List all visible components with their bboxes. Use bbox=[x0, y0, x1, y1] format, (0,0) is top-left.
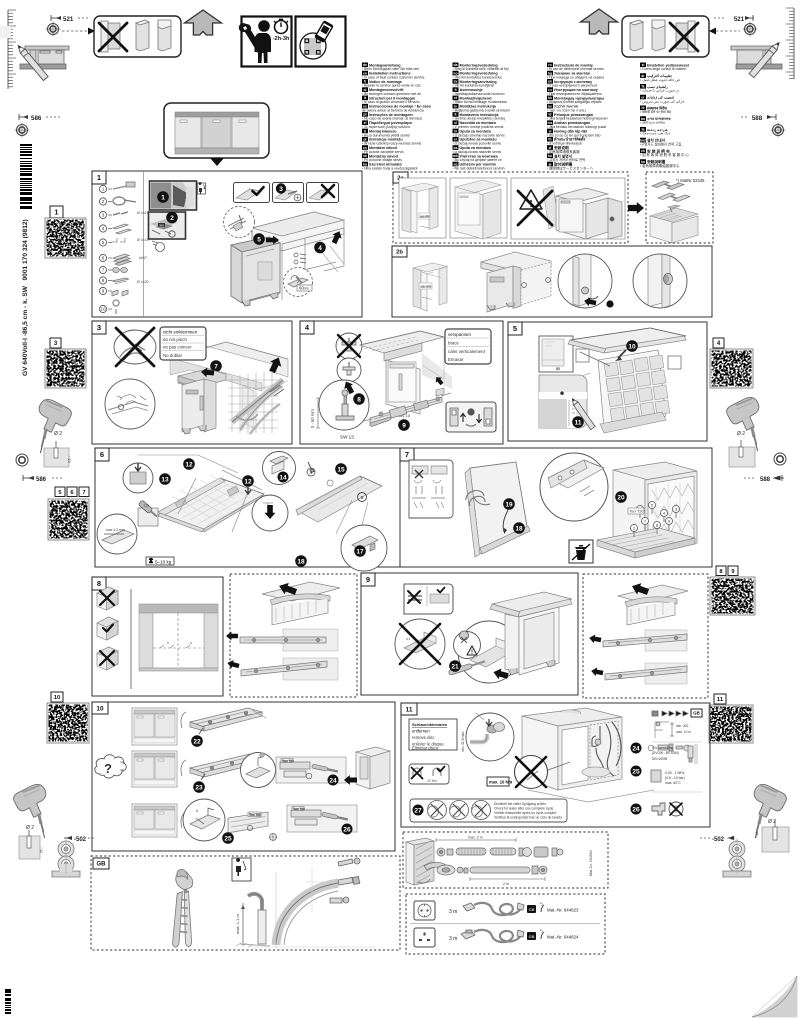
svg-text:¹ Arıza durumunda yetkili serv: ¹ Arıza durumunda yetkili servisi bbox=[362, 133, 410, 137]
svg-text:2b: 2b bbox=[396, 250, 403, 256]
svg-text:Check for leaks after one comp: Check for leaks after one complete cycle… bbox=[494, 807, 554, 811]
svg-text:11: 11 bbox=[717, 697, 724, 703]
svg-text:1: 1 bbox=[102, 187, 105, 192]
svg-text:11: 11 bbox=[406, 706, 413, 713]
svg-text:9: 9 bbox=[366, 575, 370, 584]
svg-text:10: 10 bbox=[96, 705, 104, 712]
svg-text:-2h-3h: -2h-3h bbox=[273, 36, 290, 42]
svg-text:4: 4 bbox=[102, 226, 105, 231]
svg-text:Schlauchklemmen: Schlauchklemmen bbox=[412, 722, 448, 727]
svg-text:5–10 kg: 5–10 kg bbox=[155, 560, 172, 565]
svg-text:521: 521 bbox=[63, 16, 74, 23]
svg-text:Torx T20: Torx T20 bbox=[293, 807, 305, 811]
svg-text:10: 10 bbox=[628, 343, 636, 350]
svg-text:!: ! bbox=[471, 650, 473, 656]
svg-text:7: 7 bbox=[405, 450, 409, 459]
svg-text:max. 1,1 m: max. 1,1 m bbox=[235, 914, 240, 934]
svg-text:GB: GB bbox=[97, 862, 107, 868]
svg-text:¹ In case of fault contact cus: ¹ In case of fault contact customer serv… bbox=[362, 75, 425, 79]
svg-text:brace: brace bbox=[448, 341, 460, 346]
svg-text:521: 521 bbox=[734, 16, 745, 23]
svg-text:¹ W razie usterki proszę wezwa: ¹ W razie usterki proszę wezwać serwis bbox=[362, 142, 421, 146]
svg-text:¹ 고장시 서버스센터로 연락: ¹ 고장시 서버스센터로 연락 bbox=[547, 157, 585, 162]
svg-text:586: 586 bbox=[31, 115, 42, 122]
svg-text:10: 10 bbox=[100, 307, 106, 312]
svg-text:de avería avisar al Servicio d: de avería avisar al Servicio de Asistenc… bbox=[362, 108, 424, 112]
svg-text:18: 18 bbox=[515, 525, 523, 532]
svg-text:max. 60°C: max. 60°C bbox=[665, 781, 681, 785]
svg-text:nicht einklemmen: nicht einklemmen bbox=[163, 330, 198, 335]
svg-text:8: 8 bbox=[102, 278, 105, 283]
svg-text:Ø 4x15: Ø 4x15 bbox=[137, 238, 149, 242]
svg-text:¹ கோளாை டின் சேர்: ¹ கோளாை டின் சேர் bbox=[640, 132, 671, 136]
svg-text:8: 8 bbox=[97, 579, 101, 588]
svg-text:¹ במקרה של תקלה צור קשר: ¹ במקרה של תקלה צור קשר bbox=[547, 108, 586, 112]
svg-text:26: 26 bbox=[343, 826, 351, 833]
svg-text:¹ Bij storingen contact opneme: ¹ Bij storingen contact opnemen met de bbox=[362, 92, 421, 96]
svg-text:max. 10 m: max. 10 m bbox=[676, 730, 691, 734]
svg-text:360: 360 bbox=[159, 224, 164, 228]
svg-text:entfernen: entfernen bbox=[412, 729, 430, 734]
svg-text:¹ في حالة حدوث عطل اتصل: ¹ في حالة حدوث عطل اتصل bbox=[640, 78, 680, 82]
svg-text:¹ Häiriötapauksessa soita huol: ¹ Häiriötapauksessa soita huoltoon bbox=[453, 92, 505, 96]
svg-text:DIN 44995: DIN 44995 bbox=[652, 757, 667, 761]
svg-text:¹ Во случај на дефект јавете с: ¹ Во случај на дефект јавете се bbox=[453, 158, 502, 162]
svg-text:5: 5 bbox=[513, 324, 517, 333]
svg-text:Eliminar disco: Eliminar disco bbox=[412, 746, 439, 751]
svg-text:GB: GB bbox=[693, 711, 700, 716]
svg-text:¹ При неисправности обращайтес: ¹ При неисправности обращайтесь bbox=[547, 92, 602, 96]
svg-text:~12: ~12 bbox=[39, 847, 43, 853]
svg-text:¹ Pri poruche volajte servis: ¹ Pri poruche volajte servis bbox=[362, 158, 402, 162]
svg-text:13: 13 bbox=[161, 476, 169, 483]
svg-text:3: 3 bbox=[102, 213, 105, 218]
svg-text:GB: GB bbox=[529, 907, 535, 912]
svg-text:21: 21 bbox=[451, 663, 459, 670]
svg-text:2 m: 2 m bbox=[503, 882, 509, 886]
svg-text:-502: -502 bbox=[712, 837, 725, 843]
svg-text:¹ ত্রীটি হলে সার্ভিস: ¹ ত্রীটি হলে সার্ভিস bbox=[640, 121, 666, 125]
svg-text:GB: GB bbox=[529, 934, 535, 939]
svg-text:¹ U slučaju kvara nazovite ser: ¹ U slučaju kvara nazovite servis bbox=[453, 150, 502, 154]
svg-text:Vérifier létanchéité après un: Vérifier létanchéité après un cycle comp… bbox=[494, 811, 557, 815]
svg-text:¹ หากมีปัญหาติดต่อศูนย์: ¹ หากมีปัญหาติดต่อศูนย์ bbox=[547, 141, 582, 146]
svg-text:5: 5 bbox=[257, 236, 261, 243]
svg-text:2: 2 bbox=[170, 215, 174, 222]
svg-text:x: x bbox=[167, 640, 169, 645]
svg-text:Ø 2: Ø 2 bbox=[54, 431, 62, 437]
svg-text:15: 15 bbox=[337, 466, 345, 473]
svg-text:Torx T20: Torx T20 bbox=[282, 759, 294, 763]
svg-text:6: 6 bbox=[102, 256, 105, 261]
svg-text:max 1.2 mm: max 1.2 mm bbox=[106, 528, 125, 532]
svg-text:Torx T20: Torx T20 bbox=[249, 813, 261, 817]
svg-text:1: 1 bbox=[55, 210, 59, 217]
svg-text:¹ U slučaju kvara pozovite ser: ¹ U slučaju kvara pozovite servis bbox=[453, 142, 502, 146]
svg-text:GV 640VolI-I -86,5 cm - k. SW: GV 640VolI-I -86,5 cm - k. SW 9001 170 3… bbox=[22, 219, 29, 376]
svg-text:Ø 2: Ø 2 bbox=[26, 825, 34, 831]
svg-text:min. 400: min. 400 bbox=[676, 724, 688, 728]
svg-text:¹ În caz de defecțiune chemați: ¹ În caz de defecțiune chemați service bbox=[547, 67, 604, 71]
svg-text:remove disc: remove disc bbox=[412, 735, 435, 740]
svg-text:¹ Při poruše zavolejte servis: ¹ Při poruše zavolejte servis bbox=[362, 150, 404, 154]
svg-text:27: 27 bbox=[414, 807, 422, 814]
svg-text:*): *) bbox=[540, 929, 543, 933]
svg-text:Verificar la estanquidad tras: Verificar la estanquidad tras un ciclo d… bbox=[494, 816, 563, 820]
svg-text:¹ 故障時はサービスセンターへ: ¹ 故障時はサービスセンターへ bbox=[547, 165, 594, 170]
svg-text:588: 588 bbox=[760, 477, 771, 483]
svg-text:¹ In caso di guasto chiamare i: ¹ In caso di guasto chiamare il servizio bbox=[362, 100, 420, 104]
svg-text:¹ خرابی کی صورت میں سروس: ¹ خرابی کی صورت میں سروس bbox=[640, 99, 684, 103]
svg-text:3 m: 3 m bbox=[449, 909, 457, 915]
svg-text:14: 14 bbox=[279, 474, 287, 481]
svg-text:8: 8 bbox=[196, 809, 198, 813]
svg-text:0 - 60 mm: 0 - 60 mm bbox=[310, 409, 315, 428]
svg-text:Ø 2: Ø 2 bbox=[737, 431, 745, 437]
svg-text:¹ У разі несправності зверніть: ¹ У разі несправності зверніться bbox=[547, 84, 597, 88]
svg-text:¹ Ved feil kontaktes kundeserv: ¹ Ved feil kontaktes kundeservice bbox=[453, 75, 503, 79]
svg-text:-502: -502 bbox=[74, 837, 87, 843]
svg-text:23: 23 bbox=[195, 784, 203, 791]
svg-text:Enrasar: Enrasar bbox=[448, 357, 464, 362]
svg-text:Dichtheit bei voller Spülgang: Dichtheit bei voller Spülgang prüfen. bbox=[494, 802, 547, 806]
svg-text:¹ खराबी होने पर सेवा केंद्र: ¹ खराबी होने पर सेवा केंद्र bbox=[640, 109, 671, 114]
svg-text:Ø 4x20: Ø 4x20 bbox=[137, 280, 149, 284]
svg-text:7: 7 bbox=[102, 268, 105, 273]
svg-text:~12: ~12 bbox=[755, 832, 759, 838]
svg-text:¹ Khi có sự cố xin gọi trung t: ¹ Khi có sự cố xin gọi trung tâm bảo bbox=[547, 133, 601, 137]
svg-text:6: 6 bbox=[100, 450, 104, 459]
svg-text:¹ Appeler le service après-ven: ¹ Appeler le service après-vente en cas bbox=[362, 84, 421, 88]
svg-text:9: 9 bbox=[402, 422, 406, 429]
svg-text:Ø 4x15: Ø 4x15 bbox=[137, 211, 149, 215]
svg-text:10: 10 bbox=[54, 695, 60, 701]
svg-text:¹ Lorem large consol to matteh: ¹ Lorem large consol to matteh bbox=[640, 67, 686, 71]
svg-text:¹ Vid fel kontakta kundtjänst: ¹ Vid fel kontakta kundtjänst bbox=[453, 84, 495, 88]
svg-text:¹ Jika berlaku kerosakan hubun: ¹ Jika berlaku kerosakan hubungi pusat bbox=[547, 125, 606, 129]
svg-text:5: 5 bbox=[361, 495, 364, 501]
svg-text:5: 5 bbox=[102, 240, 105, 245]
svg-text:do not pinch: do not pinch bbox=[163, 337, 187, 342]
svg-text:≤1: ≤1 bbox=[406, 636, 411, 641]
svg-text:25: 25 bbox=[632, 768, 640, 775]
svg-text:verspannen: verspannen bbox=[448, 332, 472, 337]
svg-text:x: x bbox=[190, 640, 192, 645]
svg-text:¹ Ring til kundeservice i tilf: ¹ Ring til kundeservice i tilfælde af fe… bbox=[453, 67, 509, 71]
svg-text:max. 2 m: max. 2 m bbox=[468, 836, 483, 840]
svg-text:25: 25 bbox=[224, 835, 232, 842]
svg-text:12: 12 bbox=[185, 461, 193, 468]
svg-text:¹ При повреда се обадете на се: ¹ При повреда се обадете на сервиз bbox=[547, 75, 604, 79]
svg-text:¹ Jika terjadi kesalahan hubun: ¹ Jika terjadi kesalahan hubungi layanan bbox=[547, 117, 608, 121]
svg-text:(0,5 - 10 bar): (0,5 - 10 bar) bbox=[665, 776, 685, 780]
svg-text:24: 24 bbox=[632, 745, 640, 752]
svg-text:11: 11 bbox=[575, 419, 582, 426]
svg-text:min. Ø 40mm: min. Ø 40mm bbox=[461, 731, 465, 752]
svg-text:¹ Beim Störungsfall rufen Sie: ¹ Beim Störungsfall rufen Sie bitte den bbox=[362, 67, 419, 71]
svg-text:min 550: min 550 bbox=[420, 215, 430, 219]
svg-text:¹ Σε περίπτωση βλάβης καλέστε: ¹ Σε περίπτωση βλάβης καλέστε bbox=[362, 125, 411, 129]
svg-text:¹ 若有故障請聯紹客服中心: ¹ 若有故障請聯紹客服中心 bbox=[640, 163, 680, 168]
svg-text:T20: T20 bbox=[143, 504, 149, 508]
svg-text:12: 12 bbox=[244, 478, 252, 485]
svg-text:10 Nm: 10 Nm bbox=[427, 779, 437, 783]
svg-text:3 m: 3 m bbox=[449, 936, 457, 942]
svg-text:0,05 - 1 MPa: 0,05 - 1 MPa bbox=[665, 771, 685, 775]
svg-text:Torx T20: Torx T20 bbox=[630, 510, 644, 514]
svg-text:?: ? bbox=[104, 761, 112, 776]
svg-text:G¾ aansluiting: G¾ aansluiting bbox=[652, 746, 673, 750]
svg-text:Mat.-Nr. 644823: Mat.-Nr. 644823 bbox=[547, 908, 579, 913]
svg-text:¹ 如有故障请联系客服: ¹ 如有故障请联系客服 bbox=[547, 149, 580, 154]
svg-text:1: 1 bbox=[97, 173, 101, 182]
svg-text:¹ Rikke korral helistage hoold: ¹ Rikke korral helistage hooldusesse bbox=[453, 100, 508, 104]
svg-text:4: 4 bbox=[318, 245, 322, 252]
svg-text:min 600: min 600 bbox=[421, 285, 432, 289]
svg-text:ne pas coincer: ne pas coincer bbox=[163, 345, 192, 350]
svg-text:2: 2 bbox=[102, 199, 105, 204]
svg-text:¹ در صورت خرابی با خدمات: ¹ در صورت خرابی با خدمات bbox=[640, 89, 680, 93]
svg-text:*): *) bbox=[540, 902, 543, 906]
svg-text:¹ Bojājuma gadījumā zvaniet se: ¹ Bojājuma gadījumā zvaniet servisam bbox=[453, 108, 510, 112]
svg-text:7: 7 bbox=[214, 363, 218, 370]
svg-text:¹ Në rast defekti telefononi s: ¹ Në rast defekti telefononi servisin bbox=[453, 166, 505, 170]
svg-text:¹ 如 有 故 障 请 联 系 客 服 中 心: ¹ 如 有 故 障 请 联 系 客 服 中 心 bbox=[640, 152, 689, 157]
svg-text:8: 8 bbox=[357, 396, 361, 403]
svg-text:60min: 60min bbox=[299, 286, 309, 291]
svg-text:22: 22 bbox=[193, 738, 201, 745]
svg-text:¹ Gedimo atveju kreipkitės į s: ¹ Gedimo atveju kreipkitės į servisą bbox=[453, 117, 506, 121]
svg-text:588: 588 bbox=[752, 115, 763, 122]
svg-text:3: 3 bbox=[97, 323, 101, 332]
svg-text:60: 60 bbox=[556, 367, 560, 371]
svg-text:¹ Ақаулық болған жағдайда серв: ¹ Ақаулық болған жағдайда сервис bbox=[547, 100, 602, 104]
svg-text:¹ V primeru motnje pokličite s: ¹ V primeru motnje pokličite servis bbox=[453, 125, 504, 129]
svg-text:#467: #467 bbox=[139, 256, 147, 260]
svg-text:18: 18 bbox=[297, 558, 305, 565]
svg-text:Mat.-Nr. 644824: Mat.-Nr. 644824 bbox=[547, 935, 579, 940]
svg-text:586: 586 bbox=[36, 477, 47, 483]
svg-text:1: 1 bbox=[161, 194, 165, 201]
svg-text:20: 20 bbox=[617, 494, 625, 501]
svg-text:17: 17 bbox=[356, 548, 364, 555]
svg-text:*) MatNr 02345: *) MatNr 02345 bbox=[676, 178, 705, 183]
svg-text:9: 9 bbox=[102, 289, 105, 294]
svg-text:¹ No caso de avaria chamar os: ¹ No caso de avaria chamar os Serviços bbox=[362, 117, 422, 121]
svg-text:¹ Hiba esetén hívja a vevőszol: ¹ Hiba esetén hívja a vevőszolgálatot bbox=[362, 166, 417, 170]
svg-text:max. 10 Nm: max. 10 Nm bbox=[489, 780, 513, 785]
svg-text:3: 3 bbox=[279, 186, 283, 193]
svg-text:No doblar: No doblar bbox=[163, 353, 183, 358]
svg-text:Mat.-Nr. 263564: Mat.-Nr. 263564 bbox=[589, 850, 593, 876]
svg-text:~12: ~12 bbox=[67, 456, 72, 464]
svg-text:7: 7 bbox=[82, 490, 85, 496]
svg-text:caler verticalement: caler verticalement bbox=[448, 349, 486, 354]
svg-text:26: 26 bbox=[632, 806, 640, 813]
svg-text:SW 13: SW 13 bbox=[340, 435, 354, 440]
svg-text:24: 24 bbox=[329, 777, 337, 784]
svg-text:19: 19 bbox=[505, 501, 513, 508]
svg-text:¹구명자드 설대에서 연락 고집: ¹구명자드 설대에서 연락 고집 bbox=[640, 141, 681, 146]
svg-text:¹ U slučaju smetnje nazovite s: ¹ U slučaju smetnje nazovite servis bbox=[453, 133, 506, 137]
svg-text:(DVGW - BS 6340): (DVGW - BS 6340) bbox=[652, 751, 679, 755]
